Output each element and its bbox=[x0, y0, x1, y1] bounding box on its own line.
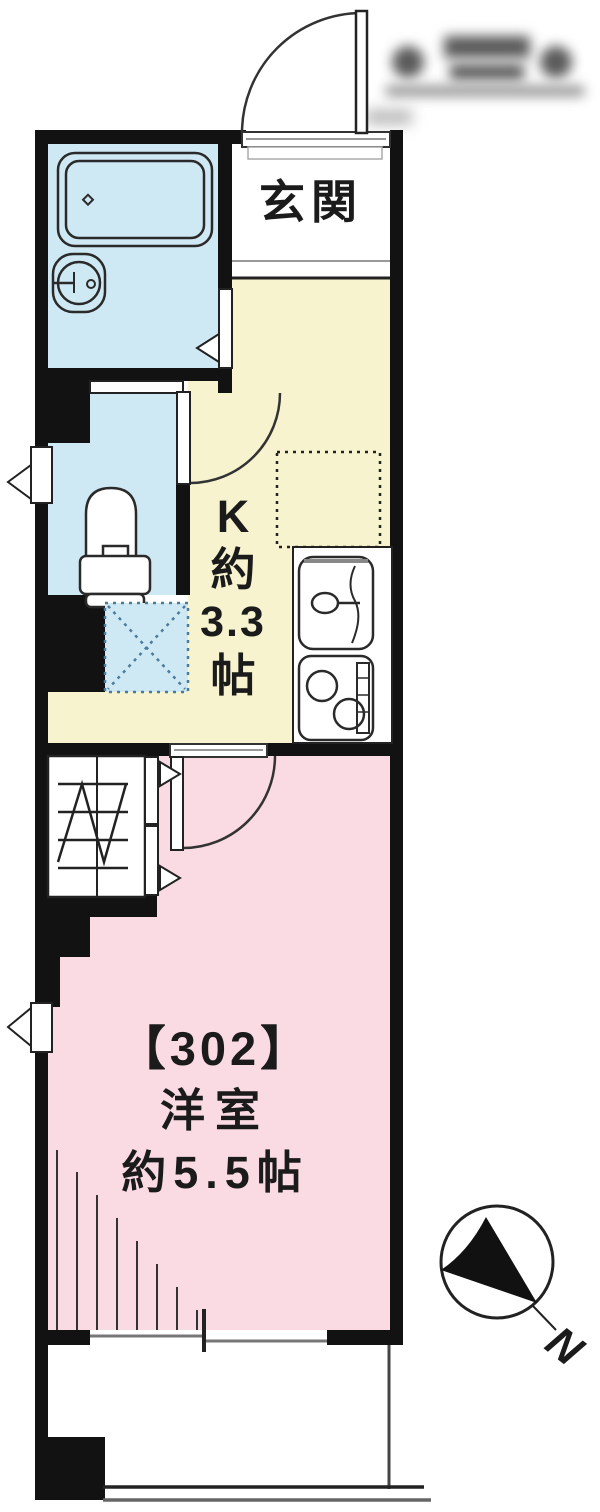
washing-machine-space-icon bbox=[105, 603, 188, 692]
floorplan-page: 玄関 K 約 3.3 帖 【302】 洋室 約5.5帖 N bbox=[0, 0, 600, 1512]
kitchen-label-line: 約 bbox=[182, 543, 284, 596]
wall-bottom-left bbox=[35, 1330, 90, 1345]
unit-number-label: 【302】 bbox=[55, 1018, 375, 1080]
wall-step-2 bbox=[35, 917, 90, 957]
wall-top bbox=[35, 130, 246, 144]
side-window-room bbox=[8, 1003, 52, 1052]
bathroom-door-leaf bbox=[219, 289, 232, 368]
genkan-label: 玄関 bbox=[232, 166, 390, 232]
kitchen-label-line: 3.3 bbox=[182, 596, 284, 649]
compass-icon bbox=[441, 1206, 556, 1330]
toilet-partition bbox=[90, 381, 183, 393]
kitchen-label-line: K bbox=[182, 490, 284, 543]
room-size-label: 約5.5帖 bbox=[55, 1142, 375, 1204]
kitchen-label: K 約 3.3 帖 bbox=[182, 490, 284, 702]
balcony-rail bbox=[103, 1345, 431, 1500]
wall-left bbox=[35, 130, 48, 1437]
kitchen-label-line: 帖 bbox=[182, 649, 284, 702]
wall-bath-hall-lower bbox=[218, 366, 232, 393]
wall-toilet-bottom-block bbox=[48, 595, 105, 692]
room-type-label: 洋室 bbox=[55, 1080, 375, 1142]
window-swing-triangle bbox=[8, 465, 31, 499]
wall-bath-hall-upper bbox=[218, 143, 232, 289]
kitchen-hall-area bbox=[48, 692, 190, 743]
kitchen-counter bbox=[293, 547, 392, 743]
wall-toilet-corner bbox=[48, 368, 90, 443]
wall-step-1 bbox=[35, 895, 157, 917]
wall-bottom-right bbox=[327, 1330, 403, 1345]
bathroom-area bbox=[48, 143, 218, 368]
window-swing-triangle bbox=[8, 1008, 31, 1046]
entrance-step bbox=[248, 147, 382, 159]
entrance-door-arc bbox=[242, 13, 362, 133]
entrance-door-leaf bbox=[356, 11, 367, 133]
side-window-toilet bbox=[8, 447, 52, 503]
balcony-column bbox=[35, 1437, 105, 1500]
western-room-label: 【302】 洋室 約5.5帖 bbox=[55, 1018, 375, 1204]
toilet-door-leaf bbox=[177, 392, 190, 484]
wall-step-3 bbox=[35, 957, 60, 1007]
